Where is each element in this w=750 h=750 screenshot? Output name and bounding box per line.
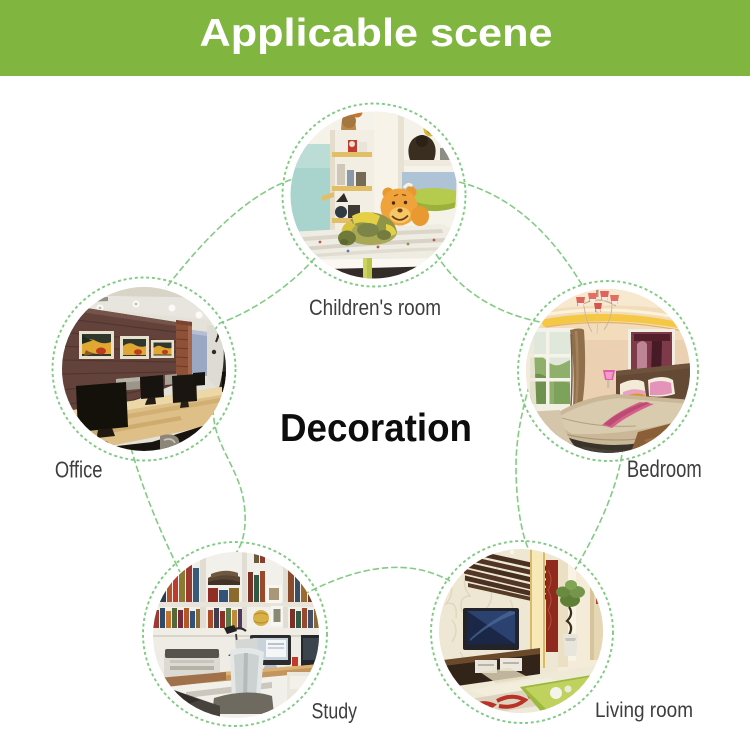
svg-text:Applicable scene: Applicable scene — [200, 12, 553, 55]
svg-text:Office: Office — [55, 457, 103, 483]
svg-text:Children's room: Children's room — [309, 295, 441, 320]
svg-text:Study: Study — [312, 699, 358, 724]
svg-text:Bedroom: Bedroom — [627, 456, 702, 483]
svg-text:Decoration: Decoration — [280, 407, 472, 450]
svg-text:Living room: Living room — [595, 699, 693, 722]
